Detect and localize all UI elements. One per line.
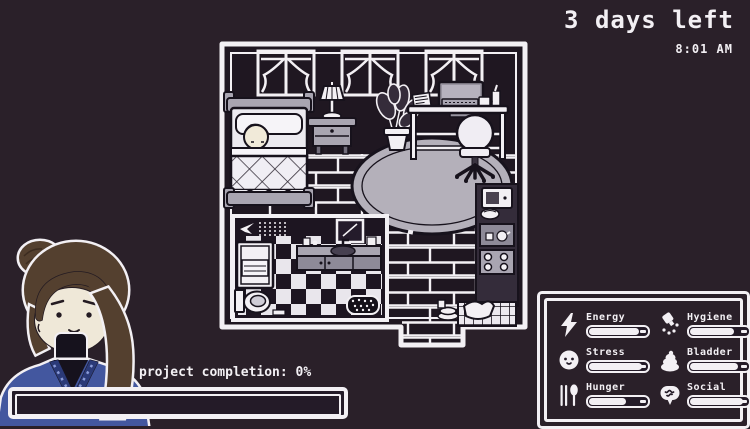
- happy-face-icon: [557, 347, 581, 373]
- speech-bubble-icon: [658, 382, 682, 408]
- stat-label: Hunger: [586, 382, 650, 394]
- bed[interactable]: [224, 92, 314, 208]
- bath-mat: [347, 296, 379, 314]
- stats-panel: Energy Hygie: [537, 291, 750, 429]
- laundry-pile[interactable]: [464, 301, 494, 319]
- stat-label: Energy: [586, 312, 650, 324]
- hunger-bar: [586, 395, 650, 408]
- bread-loaf[interactable]: [481, 209, 499, 219]
- stat-label: Bladder: [687, 347, 750, 359]
- room-scene: [212, 36, 532, 350]
- kitchenette: [476, 184, 518, 306]
- stress-bar: [586, 360, 650, 373]
- stat-energy: Energy: [557, 309, 650, 340]
- days-left-counter: 3 days left: [564, 6, 734, 34]
- lightning-icon: [557, 312, 581, 338]
- shower-head-icon: [658, 312, 682, 338]
- project-completion-label: project completion: 0%: [139, 365, 311, 380]
- poop-icon: [658, 347, 682, 373]
- stat-label: Hygiene: [687, 312, 750, 324]
- mirror: [337, 220, 363, 242]
- kitchen-shelf[interactable]: [480, 224, 514, 246]
- energy-bar: [586, 325, 650, 338]
- stat-social: Social: [658, 380, 750, 411]
- cutlery-icon: [557, 382, 581, 408]
- stat-label: Stress: [586, 347, 650, 359]
- project-progress-track: [15, 394, 341, 416]
- clock-time: 8:01 AM: [675, 42, 733, 56]
- hygiene-bar: [687, 325, 750, 338]
- shower[interactable]: [237, 242, 273, 288]
- bladder-bar: [687, 360, 750, 373]
- stat-hygiene: Hygiene: [658, 309, 750, 340]
- stat-bladder: Bladder: [658, 344, 750, 375]
- project-progress-bar: [8, 387, 348, 419]
- microwave[interactable]: [482, 188, 512, 208]
- bathroom: [233, 216, 387, 320]
- sleeping-character: [244, 124, 268, 149]
- stove[interactable]: [480, 250, 514, 274]
- social-bar: [687, 395, 750, 408]
- table-lamp[interactable]: [320, 82, 344, 120]
- desk-chair[interactable]: [455, 115, 495, 183]
- stat-label: Social: [687, 382, 750, 394]
- stat-stress: Stress: [557, 344, 650, 375]
- game-screen: 3 days left 8:01 AM: [0, 0, 750, 425]
- stat-hunger: Hunger: [557, 380, 650, 411]
- stats-grid: Energy Hygie: [544, 298, 743, 422]
